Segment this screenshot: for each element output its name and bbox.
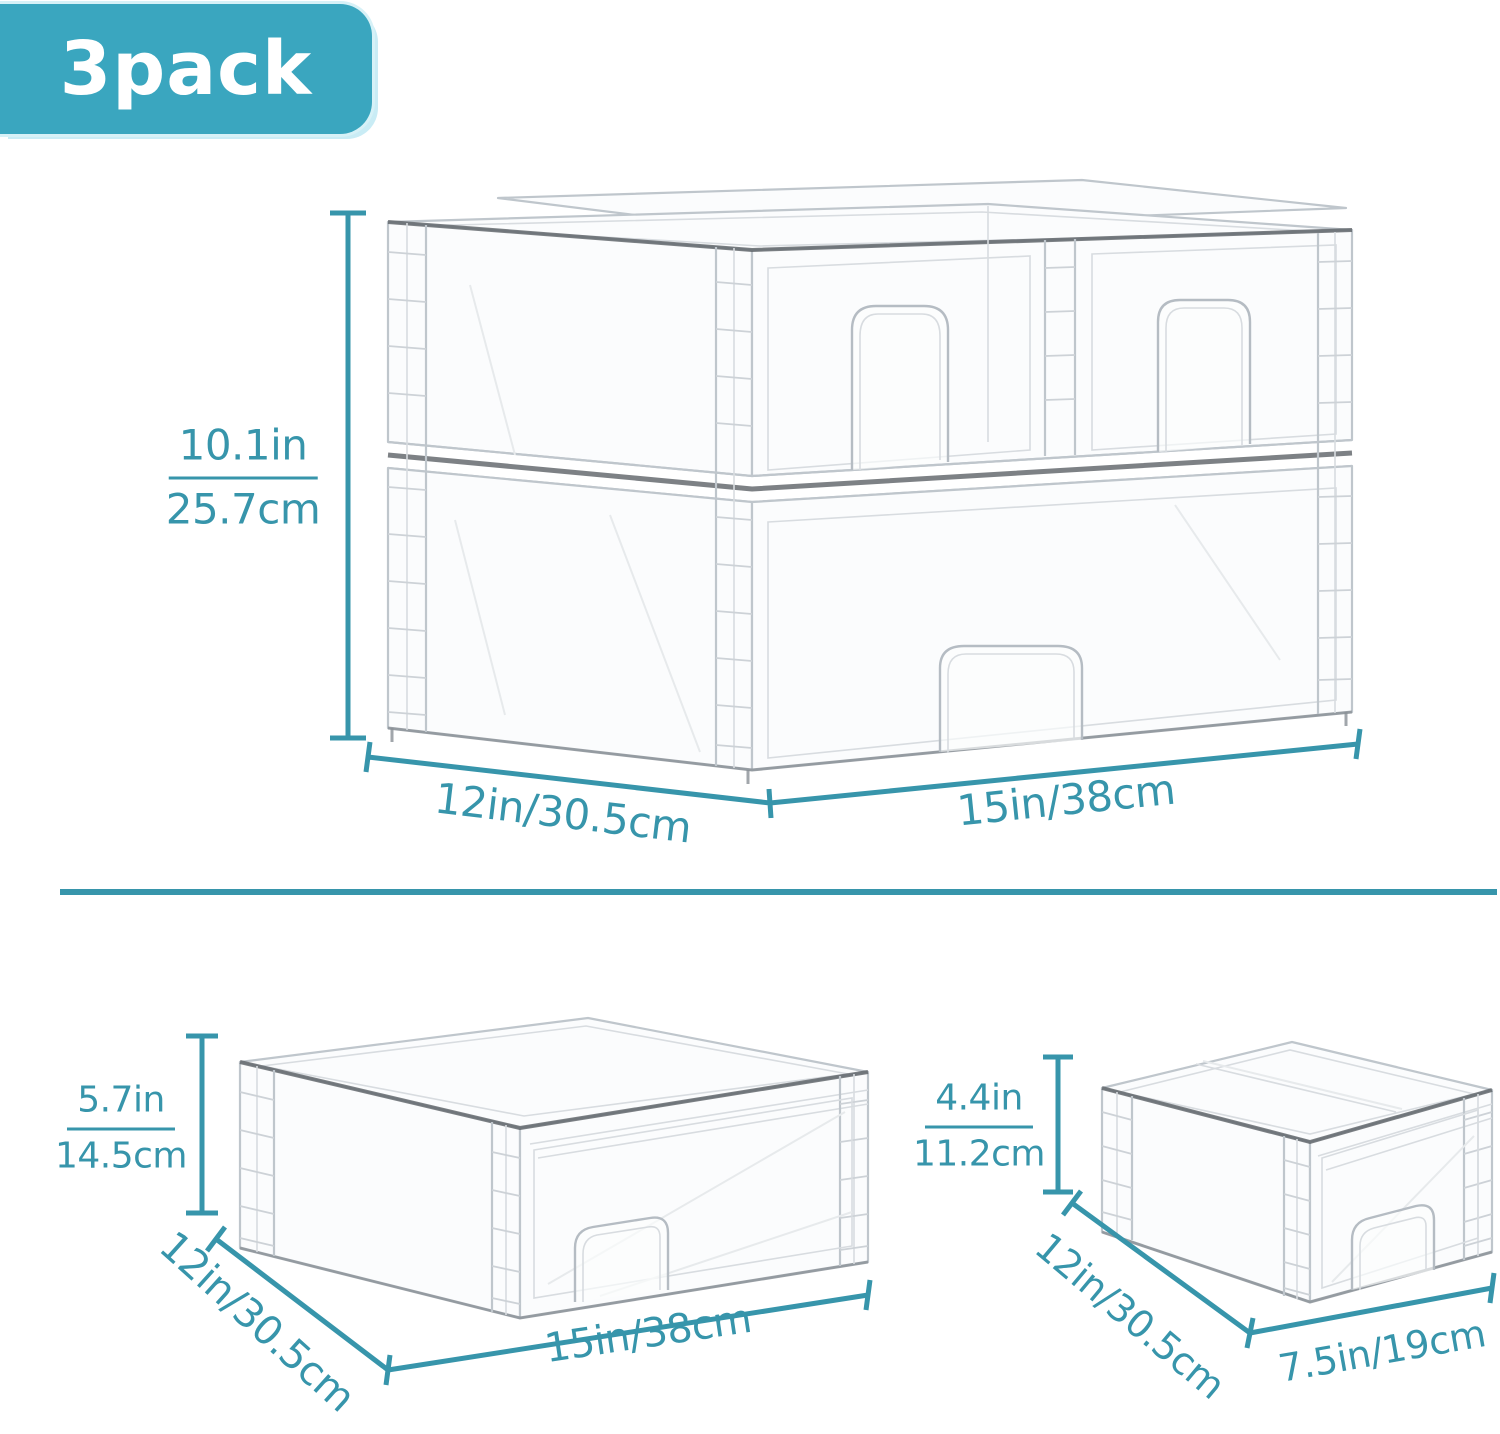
drawer-handle <box>1158 300 1250 452</box>
small-height-dimension-line <box>1043 1057 1073 1192</box>
large-height-cm: 14.5cm <box>55 1136 187 1177</box>
small-height-inches: 4.4in <box>925 1078 1033 1129</box>
section-divider <box>60 889 1497 895</box>
small-height-label: 4.4in 11.2cm <box>913 1078 1045 1175</box>
large-organizer-illustration <box>240 1018 868 1318</box>
pack-count-label: 3pack <box>60 26 312 112</box>
drawer-handle <box>940 646 1082 753</box>
stack-height-cm: 25.7cm <box>166 485 321 534</box>
stack-height-dimension-line <box>330 213 366 738</box>
stack-height-label: 10.1in 25.7cm <box>166 421 321 534</box>
large-height-inches: 5.7in <box>67 1080 175 1131</box>
small-organizer-illustration <box>1102 1042 1492 1302</box>
drawer-handle <box>575 1218 668 1302</box>
small-height-cm: 11.2cm <box>913 1134 1045 1175</box>
pack-count-badge: 3pack <box>0 4 372 134</box>
stack-height-inches: 10.1in <box>169 421 318 480</box>
large-height-label: 5.7in 14.5cm <box>55 1080 187 1177</box>
stacked-organizers-illustration <box>388 180 1352 784</box>
product-diagram-art <box>0 0 1500 1434</box>
drawer-handle <box>852 306 948 470</box>
large-height-dimension-line <box>186 1036 218 1213</box>
product-dimension-diagram: 3pack 10.1in 25.7cm 12in/30.5cm 15in/38c… <box>0 0 1500 1434</box>
